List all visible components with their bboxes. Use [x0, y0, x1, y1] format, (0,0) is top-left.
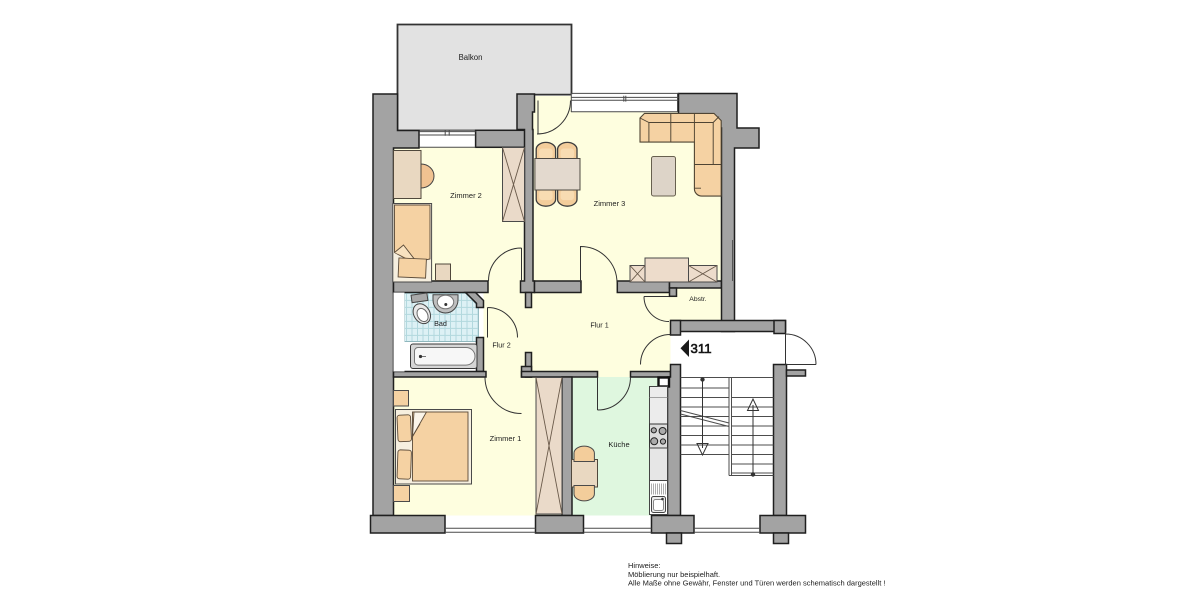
svg-text:Hinweise:: Hinweise:: [628, 561, 661, 570]
svg-text:Abstr.: Abstr.: [689, 296, 706, 303]
svg-text:Flur 1: Flur 1: [590, 321, 608, 330]
svg-text:Balkon: Balkon: [459, 53, 483, 62]
svg-text:311: 311: [691, 341, 712, 356]
svg-text:Zimmer 1: Zimmer 1: [490, 434, 522, 443]
svg-text:Zimmer 3: Zimmer 3: [594, 199, 626, 208]
svg-text:Zimmer 2: Zimmer 2: [450, 191, 482, 200]
svg-text:Bad: Bad: [434, 319, 447, 328]
svg-text:Flur 2: Flur 2: [492, 341, 510, 350]
svg-text:Alle Maße ohne Gewähr, Fenster: Alle Maße ohne Gewähr, Fenster und Türen…: [628, 579, 886, 588]
svg-text:Küche: Küche: [608, 440, 629, 449]
